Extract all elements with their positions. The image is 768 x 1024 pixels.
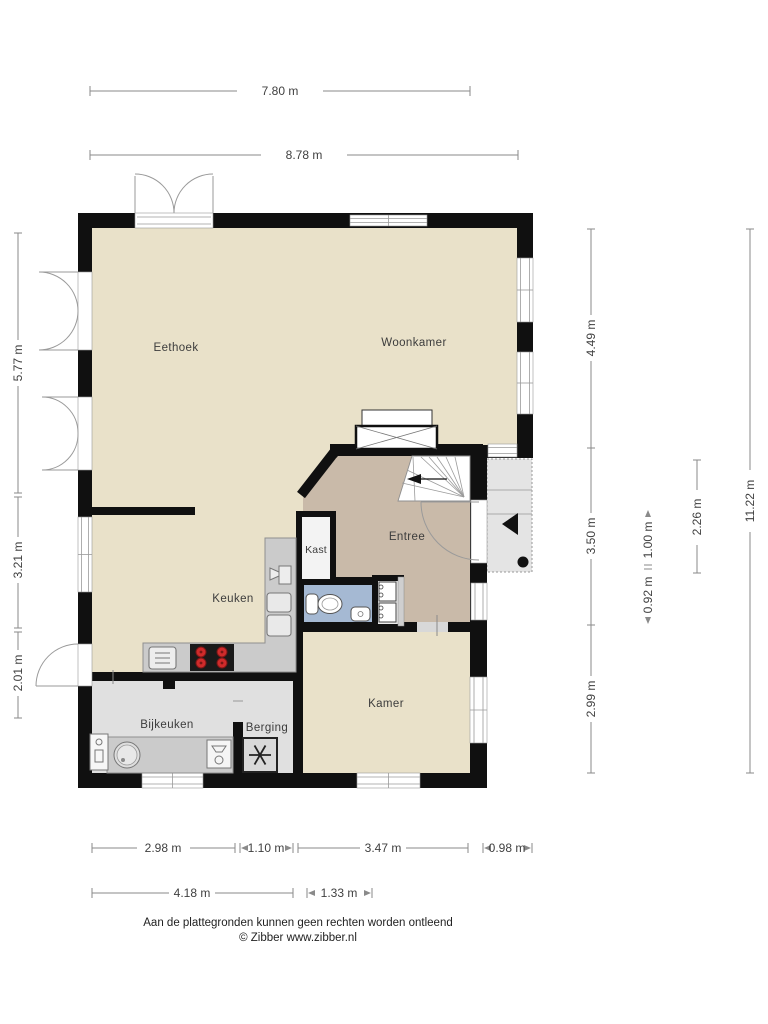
window-left-kitchen <box>78 517 92 592</box>
dim-092-100: 1.00 m 0.92 m <box>641 510 655 624</box>
dim-321: 3.21 m <box>11 497 25 628</box>
window-porch-corner <box>488 444 517 457</box>
svg-text:3.47 m: 3.47 m <box>365 841 402 855</box>
french-door-left-lower <box>42 397 92 470</box>
footer: Aan de plattegronden kunnen geen rechten… <box>143 917 452 944</box>
dim-347: 3.47 m <box>298 841 468 855</box>
floor-living <box>92 228 517 445</box>
entrance-porch <box>487 459 532 572</box>
svg-text:3.50 m: 3.50 m <box>584 518 598 555</box>
label-kast: Kast <box>305 544 327 556</box>
hand-basin-icon <box>351 607 370 621</box>
entrance-dot-icon <box>518 557 529 568</box>
svg-text:1.00 m: 1.00 m <box>641 522 655 559</box>
dim-449: 4.49 m <box>584 229 598 448</box>
copyright-text: © Zibber www.zibber.nl <box>239 932 357 944</box>
dimensions-bottom: 2.98 m 1.10 m 3.47 m 0.98 m 4.18 m 1.33 … <box>92 841 532 900</box>
label-kamer: Kamer <box>368 698 404 710</box>
french-door-left-upper <box>39 272 92 350</box>
round-sink-icon <box>114 742 140 768</box>
dimensions-left: 5.77 m 3.21 m 2.01 m <box>11 233 25 718</box>
window-kamer-right <box>470 677 487 743</box>
label-entree: Entree <box>389 531 425 543</box>
meter-niche-front <box>398 577 404 626</box>
svg-text:1.10 m: 1.10 m <box>248 841 285 855</box>
dim-098: 0.98 m <box>483 841 532 855</box>
svg-text:2.99 m: 2.99 m <box>584 681 598 718</box>
svg-text:4.18 m: 4.18 m <box>174 886 211 900</box>
dim-298: 2.98 m <box>92 841 235 855</box>
dimensions-right: 4.49 m 3.50 m 2.99 m 1.00 m 0.92 m 2.26 … <box>584 229 757 773</box>
dim-1122: 11.22 m <box>743 229 757 773</box>
svg-text:1.33 m: 1.33 m <box>321 886 358 900</box>
svg-text:4.49 m: 4.49 m <box>584 320 598 357</box>
floorplan-canvas: Eethoek Woonkamer Entree Kast Keuken Kam… <box>0 0 768 1024</box>
label-keuken: Keuken <box>212 593 253 605</box>
dim-201: 2.01 m <box>11 632 25 718</box>
dim-226: 2.26 m <box>690 460 704 573</box>
dim-878: 8.78 m <box>90 148 518 162</box>
label-berging: Berging <box>246 722 288 734</box>
dim-577: 5.77 m <box>11 233 25 493</box>
floorplan-page: Eethoek Woonkamer Entree Kast Keuken Kam… <box>0 0 768 1024</box>
builtin-cupboard <box>356 410 437 449</box>
dim-110: 1.10 m <box>240 841 293 855</box>
svg-text:2.98 m: 2.98 m <box>145 841 182 855</box>
label-bijkeuken: Bijkeuken <box>140 719 193 731</box>
bijkeuken-fixtures <box>90 734 233 773</box>
window-bottom-bijkeuken <box>142 773 203 788</box>
dim-418: 4.18 m <box>92 886 293 900</box>
svg-text:2.26 m: 2.26 m <box>690 499 704 536</box>
window-right-upper <box>517 258 533 322</box>
svg-text:3.21 m: 3.21 m <box>11 542 25 579</box>
oven-icon <box>149 647 176 669</box>
cooktop-icon <box>190 644 234 671</box>
svg-text:5.77 m: 5.77 m <box>11 345 25 382</box>
window-right-lower <box>517 352 533 414</box>
dim-299: 2.99 m <box>584 625 598 773</box>
ventilation-unit-icon <box>243 738 277 772</box>
dim-780: 7.80 m <box>90 84 470 98</box>
french-door-top <box>135 174 213 228</box>
label-eethoek: Eethoek <box>154 342 199 354</box>
svg-text:7.80 m: 7.80 m <box>262 84 299 98</box>
dim-350: 3.50 m <box>584 448 598 625</box>
svg-text:0.92 m: 0.92 m <box>641 577 655 614</box>
washer-icon <box>207 740 231 768</box>
dimensions-top: 7.80 m 8.78 m <box>90 84 518 162</box>
window-bottom-kamer <box>357 773 420 788</box>
door-left-bijkeuken <box>36 644 92 686</box>
dim-133: 1.33 m <box>307 886 372 900</box>
window-entree-right <box>471 583 487 620</box>
disclaimer-text: Aan de plattegronden kunnen geen rechten… <box>143 917 452 929</box>
window-top <box>350 215 427 226</box>
svg-text:8.78 m: 8.78 m <box>286 148 323 162</box>
svg-text:0.98 m: 0.98 m <box>489 841 526 855</box>
svg-text:2.01 m: 2.01 m <box>11 655 25 692</box>
wc-icon <box>306 594 342 614</box>
svg-text:11.22 m: 11.22 m <box>743 480 757 522</box>
label-woonkamer: Woonkamer <box>381 337 446 349</box>
boiler-icon <box>90 734 108 770</box>
kitchen-sink-icon <box>267 593 291 636</box>
